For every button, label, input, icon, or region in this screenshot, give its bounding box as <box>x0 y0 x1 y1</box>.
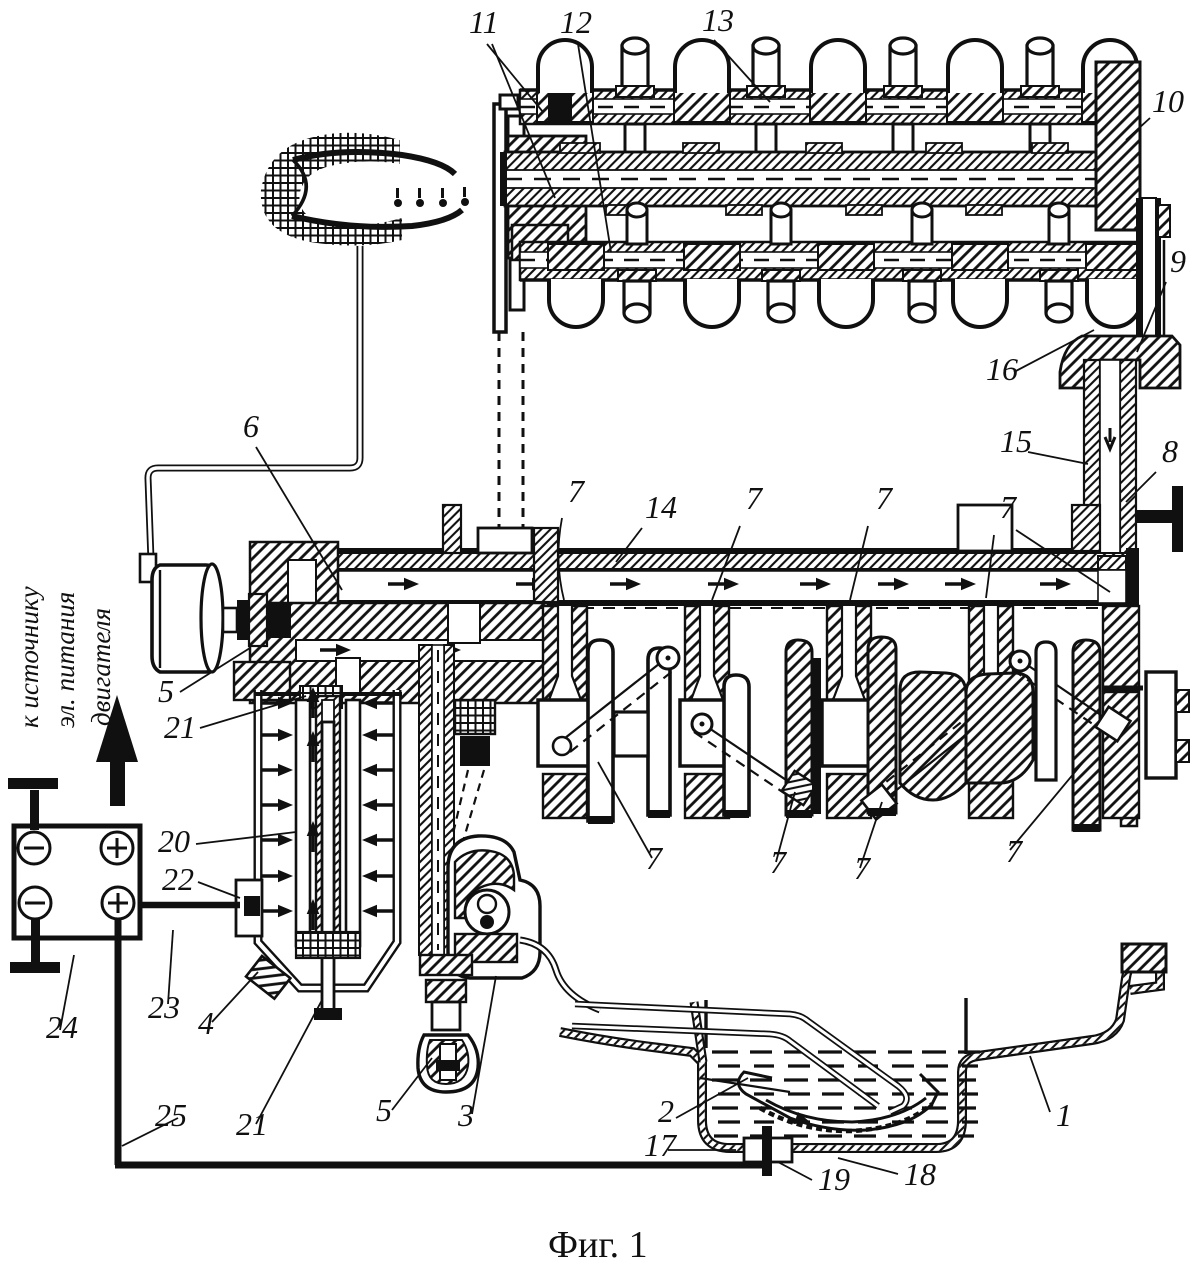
svg-text:эл. питания: эл. питания <box>50 592 80 728</box>
svg-text:22: 22 <box>162 861 194 897</box>
svg-text:9: 9 <box>1170 243 1186 279</box>
svg-text:7: 7 <box>1000 489 1018 525</box>
svg-text:18: 18 <box>904 1156 936 1192</box>
svg-text:7: 7 <box>568 473 586 509</box>
svg-text:7: 7 <box>876 480 894 516</box>
svg-text:2: 2 <box>658 1093 674 1129</box>
svg-text:17: 17 <box>644 1127 678 1163</box>
svg-text:7: 7 <box>1006 833 1024 869</box>
svg-text:10: 10 <box>1152 83 1184 119</box>
svg-text:4: 4 <box>198 1005 214 1041</box>
svg-text:7: 7 <box>646 840 664 876</box>
svg-text:8: 8 <box>1162 433 1178 469</box>
svg-text:19: 19 <box>818 1161 850 1197</box>
svg-text:5: 5 <box>158 673 174 709</box>
svg-text:двигателя: двигателя <box>86 608 116 726</box>
svg-text:к источнику: к источнику <box>14 586 44 728</box>
svg-text:21: 21 <box>164 709 196 745</box>
svg-text:3: 3 <box>457 1097 474 1133</box>
svg-text:5: 5 <box>376 1092 392 1128</box>
svg-text:12: 12 <box>560 4 592 40</box>
svg-text:23: 23 <box>148 989 180 1025</box>
svg-text:1: 1 <box>1056 1097 1072 1133</box>
svg-text:7: 7 <box>854 850 872 886</box>
svg-text:13: 13 <box>702 2 734 38</box>
svg-text:14: 14 <box>645 489 677 525</box>
svg-text:11: 11 <box>469 4 499 40</box>
svg-text:6: 6 <box>243 408 259 444</box>
svg-text:20: 20 <box>158 823 190 859</box>
svg-text:Фиг. 1: Фиг. 1 <box>548 1224 648 1265</box>
svg-text:16: 16 <box>986 351 1018 387</box>
svg-text:7: 7 <box>746 480 764 516</box>
svg-text:15: 15 <box>1000 423 1032 459</box>
